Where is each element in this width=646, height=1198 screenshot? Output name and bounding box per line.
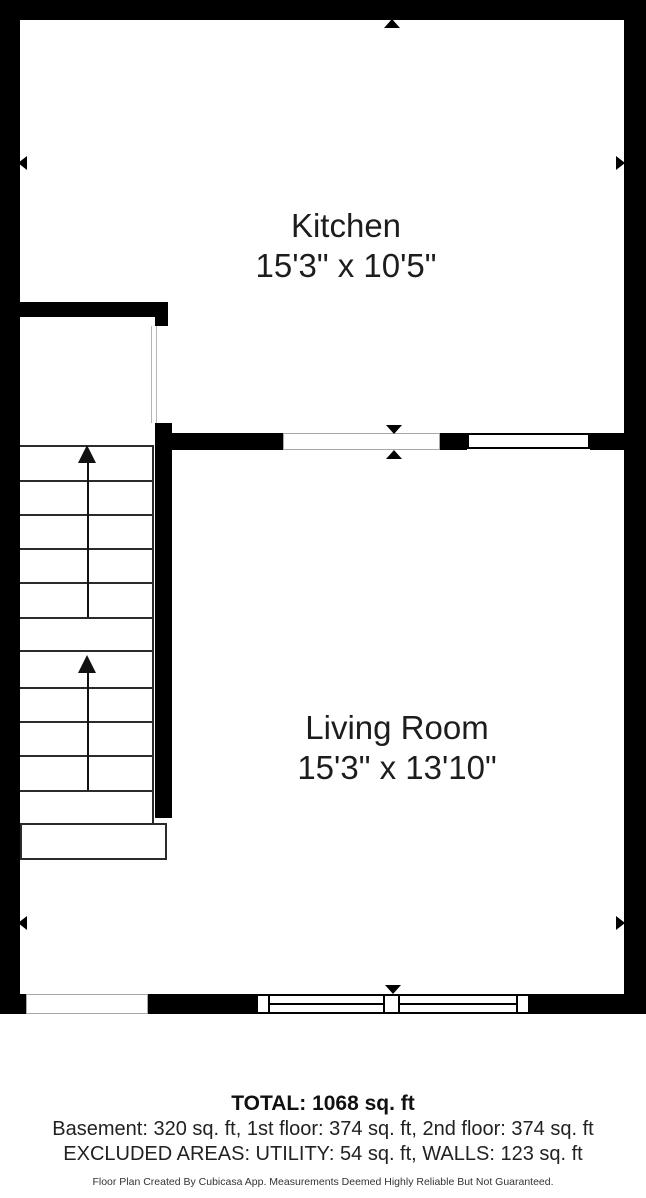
window-post — [383, 996, 385, 1012]
summary-block: TOTAL: 1068 sq. ft Basement: 320 sq. ft,… — [0, 1091, 646, 1189]
room-passage-opening — [283, 433, 440, 450]
room-living-room: Living Room 15'3" x 13'10" — [297, 708, 496, 788]
wall-marker-up-icon — [384, 19, 400, 28]
room-name: Kitchen — [256, 206, 437, 246]
window-glass-line — [270, 1003, 383, 1005]
wall-left — [0, 0, 20, 1014]
wall-bottom-right — [530, 994, 646, 1014]
floor-plan: Kitchen 15'3" x 10'5" Living Room 15'3" … — [0, 0, 646, 1014]
bottom-wall-opening — [26, 994, 148, 1014]
stair-tread — [20, 617, 153, 619]
window-marker-down-icon — [385, 985, 401, 994]
stair-tread — [20, 790, 153, 792]
stair-up-arrow-icon — [78, 655, 96, 673]
wall-stair-right — [155, 423, 172, 818]
disclaimer-text: Floor Plan Created By Cubicasa App. Meas… — [0, 1176, 646, 1189]
wall-right — [624, 0, 646, 1014]
floor-breakdown-text: Basement: 320 sq. ft, 1st floor: 374 sq.… — [0, 1117, 646, 1142]
hall-doorway-opening — [151, 326, 157, 423]
wall-top — [0, 0, 646, 20]
wall-marker-right-icon — [616, 916, 625, 930]
middle-window — [467, 433, 590, 449]
wall-marker-left-icon — [18, 916, 27, 930]
wall-bottom-mid — [148, 994, 256, 1014]
wall-divider-right — [590, 433, 625, 450]
wall-marker-left-icon — [18, 156, 27, 170]
total-area-text: TOTAL: 1068 sq. ft — [0, 1091, 646, 1117]
stair-arrow-line — [87, 672, 89, 790]
wall-divider-mid — [440, 433, 467, 450]
room-dimensions: 15'3" x 10'5" — [256, 246, 437, 286]
window-post — [516, 996, 518, 1012]
opening-marker-down-icon — [386, 425, 402, 434]
wall-bottom-left — [0, 994, 26, 1014]
stair-bottom-step — [20, 823, 167, 860]
stair-up-arrow-icon — [78, 445, 96, 463]
room-kitchen: Kitchen 15'3" x 10'5" — [256, 206, 437, 286]
bottom-window — [256, 994, 530, 1014]
window-glass-line — [400, 1003, 516, 1005]
wall-hall-end — [155, 317, 168, 326]
room-dimensions: 15'3" x 13'10" — [297, 748, 496, 788]
floor-plan-page: Kitchen 15'3" x 10'5" Living Room 15'3" … — [0, 0, 646, 1198]
wall-hall-top — [0, 302, 168, 317]
wall-marker-right-icon — [616, 156, 625, 170]
opening-marker-up-icon — [386, 450, 402, 459]
stair-arrow-line — [87, 462, 89, 617]
excluded-areas-text: EXCLUDED AREAS: UTILITY: 54 sq. ft, WALL… — [0, 1142, 646, 1167]
stair-tread — [20, 650, 153, 652]
wall-divider-left — [172, 433, 283, 450]
room-name: Living Room — [297, 708, 496, 748]
stair-edge-line — [152, 445, 154, 825]
